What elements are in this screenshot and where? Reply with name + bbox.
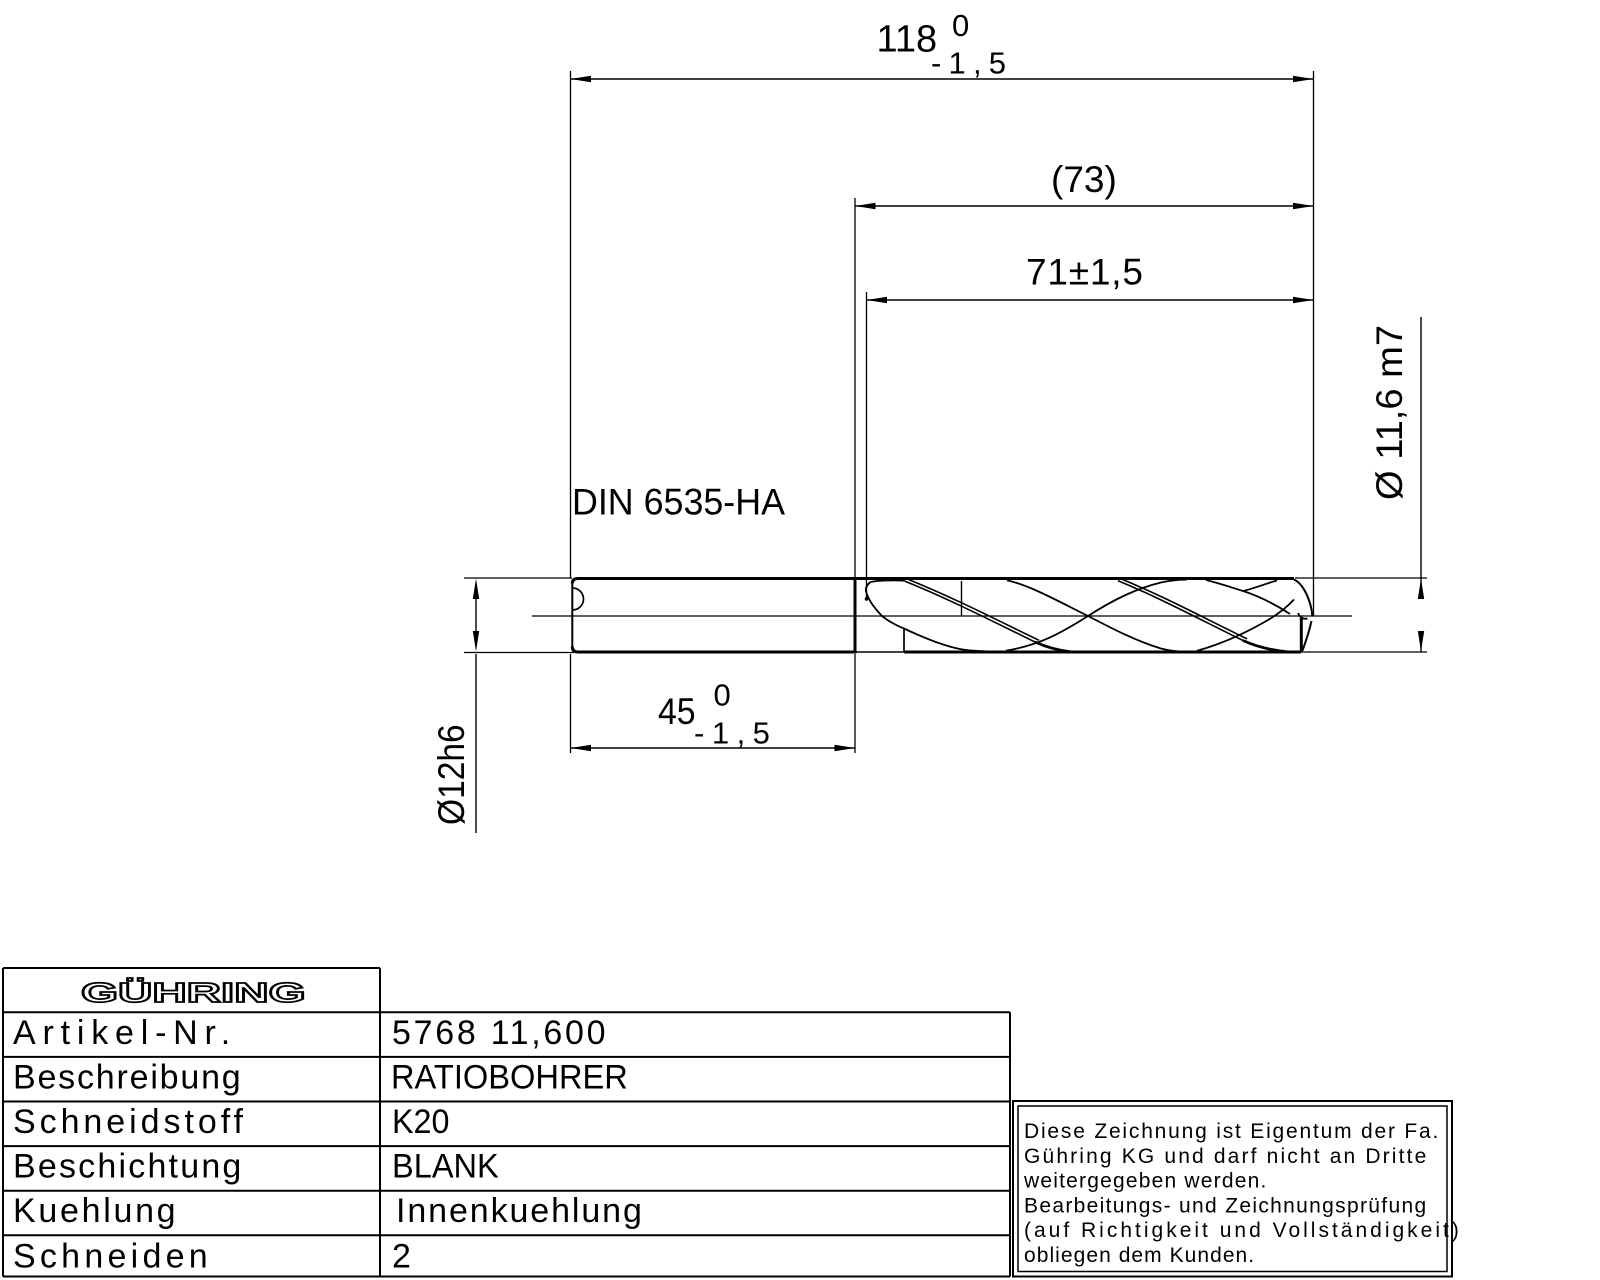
svg-text:Ø12h6: Ø12h6 [432, 724, 473, 825]
svg-text:Bearbeitungs- und Zeichnungspr: Bearbeitungs- und Zeichnungsprüfung [1024, 1194, 1427, 1217]
svg-text:0: 0 [714, 678, 731, 713]
svg-text:Beschichtung: Beschichtung [13, 1148, 244, 1186]
svg-text:118: 118 [877, 19, 938, 61]
svg-text:GÜHRING: GÜHRING [81, 978, 306, 1008]
svg-text:DIN 6535-HA: DIN 6535-HA [572, 481, 786, 523]
svg-text:-1,5: -1,5 [931, 46, 1013, 81]
svg-text:45: 45 [658, 691, 696, 733]
svg-text:K20: K20 [392, 1103, 449, 1141]
svg-text:Schneiden: Schneiden [13, 1238, 212, 1276]
svg-text:Kuehlung: Kuehlung [13, 1192, 178, 1230]
svg-text:(auf Richtigkeit und Vollständ: (auf Richtigkeit und Vollständigkeit) [1024, 1219, 1462, 1242]
svg-text:2: 2 [392, 1238, 411, 1276]
svg-text:Diese Zeichnung ist Eigentum d: Diese Zeichnung ist Eigentum der Fa. [1024, 1120, 1440, 1143]
svg-text:5768 11,600: 5768 11,600 [392, 1014, 608, 1052]
svg-text:Beschreibung: Beschreibung [13, 1059, 243, 1097]
svg-text:-1,5: -1,5 [694, 716, 777, 751]
svg-text:0: 0 [952, 8, 969, 43]
svg-text:(73): (73) [1051, 159, 1117, 200]
svg-text:Artikel-Nr.: Artikel-Nr. [13, 1014, 237, 1052]
svg-text:weitergegeben werden.: weitergegeben werden. [1023, 1170, 1268, 1193]
svg-text:Innenkuehlung: Innenkuehlung [396, 1192, 644, 1230]
svg-text:Gühring KG und darf nicht an D: Gühring KG und darf nicht an Dritte [1024, 1145, 1428, 1168]
svg-text:obliegen dem Kunden.: obliegen dem Kunden. [1024, 1244, 1255, 1267]
svg-text:BLANK: BLANK [392, 1148, 499, 1186]
svg-text:RATIOBOHRER: RATIOBOHRER [391, 1059, 628, 1097]
svg-text:71±1,5: 71±1,5 [1026, 252, 1144, 293]
svg-text:Ø 11,6 m7: Ø 11,6 m7 [1369, 325, 1410, 500]
svg-text:Schneidstoff: Schneidstoff [13, 1103, 247, 1141]
